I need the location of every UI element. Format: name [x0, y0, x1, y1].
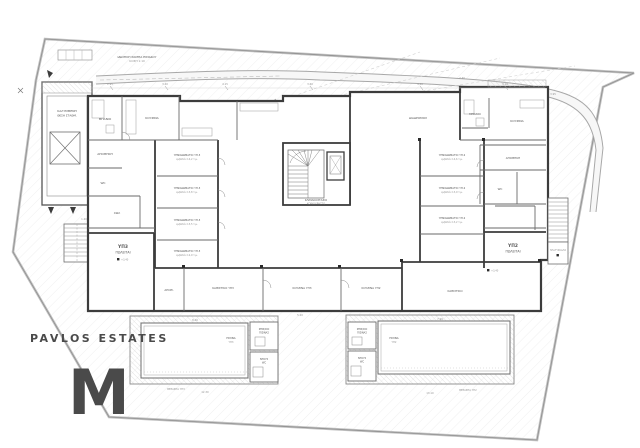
parking-label-line2: ΘΕΣΗ ΣΤΑΘΜ.: [57, 114, 77, 118]
room-store2-label: ΑΠΟΘΗΚΗ: [506, 156, 520, 160]
covered-parking: ΚΑΛΥΜΜΕΝΗ ΘΕΣΗ ΣΤΑΘΜ.: [42, 82, 92, 214]
stair-core-label2: ΚΟΙΝΟΧΡΗΣΤΟ: [307, 202, 325, 206]
svg-text:ΠΙΣΙΝΑΣ: ΠΙΣΙΝΑΣ: [357, 332, 367, 335]
svg-text:3.95: 3.95: [550, 92, 556, 96]
room-wc3-label: WC: [100, 181, 105, 185]
svg-text:ΥΠΝΟΔΩΜΑΤΙΟ ΥΠ.3: ΥΠΝΟΔΩΜΑΤΙΟ ΥΠ.3: [174, 153, 201, 157]
svg-text:WC: WC: [262, 362, 266, 365]
room-kitchen3-label: ΚΟΥΖΙΝΑ: [145, 116, 159, 120]
svg-text:3.10: 3.10: [502, 82, 508, 86]
left-pool-terrace: ΠΙΣΙΝΑ ΥΠ3 ΜΗΧ/ΣΙΟ ΠΙΣΙΝΑΣ ΝΤΟΥΣ WC ΒΕΡΑ…: [130, 316, 278, 391]
svg-text:εμβαδόν 13,5 τ.μ.: εμβαδόν 13,5 τ.μ.: [176, 223, 198, 226]
living-mid1-label: ΚΑΘΙΣΤΙΚΟ ΥΠ3: [212, 286, 234, 290]
room-bath2-label: ΜΠΑΝΙΟ: [469, 112, 481, 116]
svg-text:εμβαδόν 14,2 τ.μ.: εμβαδόν 14,2 τ.μ.: [176, 158, 198, 161]
svg-text:ΠΙΣΙΝΑΣ: ΠΙΣΙΝΑΣ: [259, 332, 269, 335]
central-staircase: ΚΛΙΜΑΚΟΣΤΑΣΙΟ ΚΟΙΝΟΧΡΗΣΤΟ: [283, 143, 350, 206]
pool-left-shower-room: ΝΤΟΥΣ WC: [250, 352, 278, 382]
svg-text:εμβαδόν 12,9 τ.μ.: εμβαδόν 12,9 τ.μ.: [176, 254, 198, 257]
room-bath3-label: ΜΠΑΝΙΟ: [99, 117, 112, 121]
level-mark-yp3: +3,40: [121, 259, 129, 262]
svg-text:4.30: 4.30: [417, 82, 423, 86]
floor-plan-canvas: ΙΔΙΩΤΙΚΗ ΡΑΜΠΑ ΕΙΣΟΔΟΥ ΚΛΙΣΗ 1:10 ΚΑΛΥΜΜ…: [0, 0, 640, 448]
svg-text:ΥΠΝΟΔΩΜΑΤΙΟ ΥΠ.2: ΥΠΝΟΔΩΜΑΤΙΟ ΥΠ.2: [439, 153, 466, 157]
left-exterior-stair: [64, 224, 90, 262]
unit-yp3-id: ΥΠ3: [117, 244, 128, 250]
room-store3-label: ΑΠΟΘΗΚΗ: [97, 152, 113, 156]
pool-right-label2: ΥΠ2: [392, 340, 397, 344]
svg-text:ΥΠΝΟΔΩΜΑΤΙΟ ΥΠ.3: ΥΠΝΟΔΩΜΑΤΙΟ ΥΠ.3: [174, 186, 201, 190]
room-store3b-label: ΑΠΟΘ.: [164, 288, 173, 292]
watermark-monogram: M: [68, 356, 130, 429]
svg-text:13.10: 13.10: [426, 391, 434, 395]
building: ΚΛΙΜΑΚΟΣΤΑΣΙΟ ΚΟΙΝΟΧΡΗΣΤΟ ΠΛΑΤΥΣΚΑΛΟ ΜΠΑ…: [88, 80, 568, 311]
svg-text:3.40: 3.40: [162, 82, 168, 86]
room-wc2-label: WC: [498, 187, 503, 191]
svg-text:8.40: 8.40: [192, 318, 198, 322]
pool-left-label2: ΥΠ3: [229, 340, 234, 344]
svg-text:ΥΠΝΟΔΩΜΑΤΙΟ ΥΠ.3: ΥΠΝΟΔΩΜΑΤΙΟ ΥΠ.3: [174, 218, 201, 222]
svg-text:1.20: 1.20: [81, 217, 87, 221]
pool-left-plant-room: ΜΗΧ/ΣΙΟ ΠΙΣΙΝΑΣ: [250, 322, 278, 350]
corridor-label: ΔΙΑΔΡΟΜΟΣ: [409, 116, 427, 120]
living-mid2-label: ΚΟΥΖΙΝΑ ΥΠ3: [293, 286, 312, 290]
living-right-label: ΚΑΘΙΣΤΙΚΟ: [447, 289, 463, 293]
svg-text:εμβαδόν 13,2 τ.μ.: εμβαδόν 13,2 τ.μ.: [441, 221, 463, 224]
svg-text:3.60: 3.60: [307, 82, 313, 86]
svg-text:7.90: 7.90: [437, 317, 443, 321]
svg-text:2.40: 2.40: [459, 76, 465, 80]
pool-right-label1: ΠΙΣΙΝΑ: [389, 336, 398, 340]
svg-text:WC: WC: [360, 361, 364, 364]
svg-text:2.95: 2.95: [107, 82, 113, 86]
room-kitchen2-label: ΚΟΥΖΙΝΑ: [510, 119, 524, 123]
pool-right: [378, 321, 510, 374]
svg-text:12.30: 12.30: [201, 390, 209, 394]
veranda-left-label: ΒΕΡΑΝΤΑ ΥΠ3: [167, 387, 185, 391]
ramp-label-line2: ΚΛΙΣΗ 1:10: [129, 59, 145, 63]
right-stair-label: ΠΛΑΤΥΣΚΑΛΟ: [550, 249, 566, 252]
svg-text:εμβαδόν 13,8 τ.μ.: εμβαδόν 13,8 τ.μ.: [176, 191, 198, 194]
svg-text:εμβαδόν 14,6 τ.μ.: εμβαδόν 14,6 τ.μ.: [441, 158, 463, 161]
stair-core-label1: ΚΛΙΜΑΚΟΣΤΑΣΙΟ: [305, 198, 327, 202]
watermark-name: PAVLOS ESTATES: [30, 332, 169, 345]
svg-text:ΥΠΝΟΔΩΜΑΤΙΟ ΥΠ.2: ΥΠΝΟΔΩΜΑΤΙΟ ΥΠ.2: [439, 216, 466, 220]
floorplan-sheet: ΙΔΙΩΤΙΚΗ ΡΑΜΠΑ ΕΙΣΟΔΟΥ ΚΛΙΣΗ 1:10 ΚΑΛΥΜΜ…: [0, 0, 640, 448]
living-mid3-label: ΚΟΥΖΙΝΑ ΥΠ2: [362, 286, 381, 290]
pool-right-plant-room: ΜΗΧ/ΣΙΟ ΠΙΣΙΝΑΣ: [348, 322, 376, 349]
right-pool-terrace: ΠΙΣΙΝΑ ΥΠ2 ΜΗΧ/ΣΙΟ ΠΙΣΙΝΑΣ ΝΤΟΥΣ WC ΒΕΡΑ…: [346, 315, 514, 392]
svg-text:ΥΠΝΟΔΩΜΑΤΙΟ ΥΠ.2: ΥΠΝΟΔΩΜΑΤΙΟ ΥΠ.2: [439, 186, 466, 190]
svg-text:4.15: 4.15: [222, 82, 228, 86]
unit-yp3-status: ΠΩΛΕΙΤΑΙ: [115, 251, 130, 255]
pool-left-label1: ΠΙΣΙΝΑ: [226, 336, 235, 340]
right-exterior-stair: ΠΛΑΤΥΣΚΑΛΟ: [548, 198, 568, 264]
pool-right-shower-room: ΝΤΟΥΣ WC: [348, 351, 376, 381]
svg-text:εμβαδόν 13,9 τ.μ.: εμβαδόν 13,9 τ.μ.: [441, 191, 463, 194]
svg-text:+3,40: +3,40: [491, 270, 499, 273]
svg-text:ΥΠΝΟΔΩΜΑΤΙΟ ΥΠ.3: ΥΠΝΟΔΩΜΑΤΙΟ ΥΠ.3: [174, 249, 201, 253]
room-hall3-label: ΧΩΛ: [114, 211, 121, 215]
planter-strip: [488, 80, 546, 87]
veranda-right-label: ΒΕΡΑΝΤΑ ΥΠ2: [459, 388, 477, 392]
unit-yp2-id: ΥΠ2: [507, 243, 518, 249]
site-gate: [58, 50, 92, 60]
svg-text:5.20: 5.20: [297, 313, 303, 317]
survey-cross: [18, 88, 23, 93]
parking-label-line1: ΚΑΛΥΜΜΕΝΗ: [57, 109, 76, 113]
unit-yp2-status: ΠΩΛΕΙΤΑΙ: [505, 250, 520, 254]
